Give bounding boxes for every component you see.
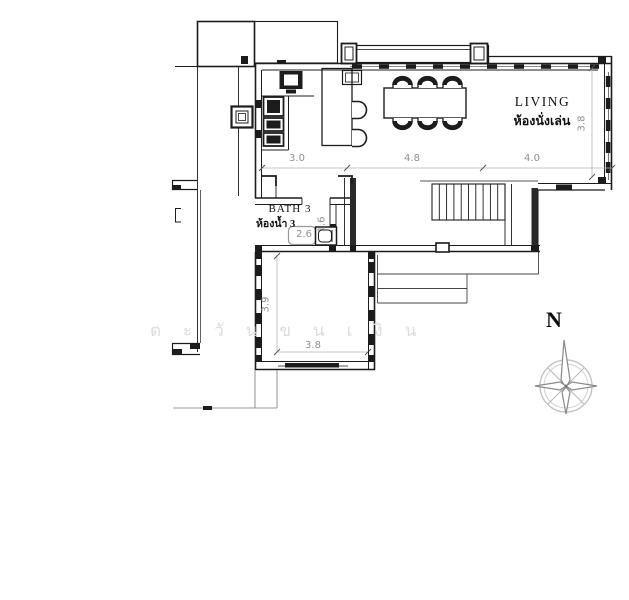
dim-top-1: 3.0: [283, 153, 311, 164]
room-label-living-en: LIVING: [505, 94, 580, 110]
watermark-letter: เ: [347, 317, 353, 344]
room-label-living-th: ห้องนั่งเล่น: [498, 111, 586, 131]
wall-basin: [232, 107, 253, 128]
ground-lines: [173, 370, 277, 410]
stairs: [420, 181, 538, 245]
floor-plan-sheet: LIVING ห้องนั่งเล่น BATH 3 ห้องน้ำ 3 3.0…: [0, 0, 629, 600]
watermark-letter: ข: [279, 317, 291, 344]
room-label-bath3-th: ห้องน้ำ 3: [256, 215, 295, 232]
dim-top-3: 4.0: [518, 153, 546, 164]
watermark-letter: วั: [214, 317, 224, 344]
watermark-letter: น: [313, 317, 325, 344]
compass-north-label: N: [546, 307, 562, 333]
dim-bath-width: 2.6: [292, 229, 316, 240]
watermark-letter: น: [405, 317, 417, 344]
watermark-letter: น: [246, 317, 258, 344]
dim-living-depth: 3.8: [577, 109, 588, 139]
kitchen-counter: [262, 71, 314, 150]
compass-rose-icon: [535, 340, 597, 414]
room-label-bath3-en: BATH 3: [262, 203, 318, 215]
watermark-letter: ะ: [183, 317, 192, 344]
watermark-letter: ต: [150, 317, 161, 344]
dining-table: [384, 77, 466, 130]
floor-plan-drawing: [0, 0, 629, 600]
watermark-letter: งิ: [374, 317, 382, 344]
balcony: [342, 44, 613, 64]
watermark-text: ต ะ วั น ข น เ งิ น: [150, 317, 416, 344]
dim-lower-room-depth: 3.9: [261, 293, 272, 317]
dim-bath-depth: 1.6: [317, 213, 328, 237]
terrace-steps: [378, 252, 539, 303]
kitchen-island: [322, 69, 367, 147]
dim-top-2: 4.8: [398, 153, 426, 164]
